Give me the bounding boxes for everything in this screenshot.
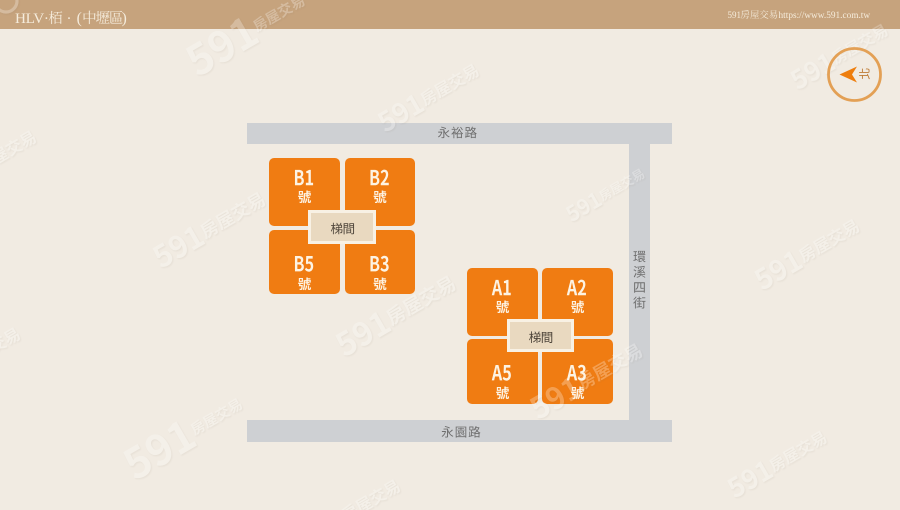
svg-text:): ) <box>122 10 127 27</box>
svg-text:(: ( <box>77 10 82 27</box>
svg-text:·: · <box>67 11 72 27</box>
svg-text:591: 591 <box>728 10 742 20</box>
svg-text:https://www.591.com.tw: https://www.591.com.tw <box>779 11 871 21</box>
svg-text:HLV·: HLV· <box>15 10 49 27</box>
